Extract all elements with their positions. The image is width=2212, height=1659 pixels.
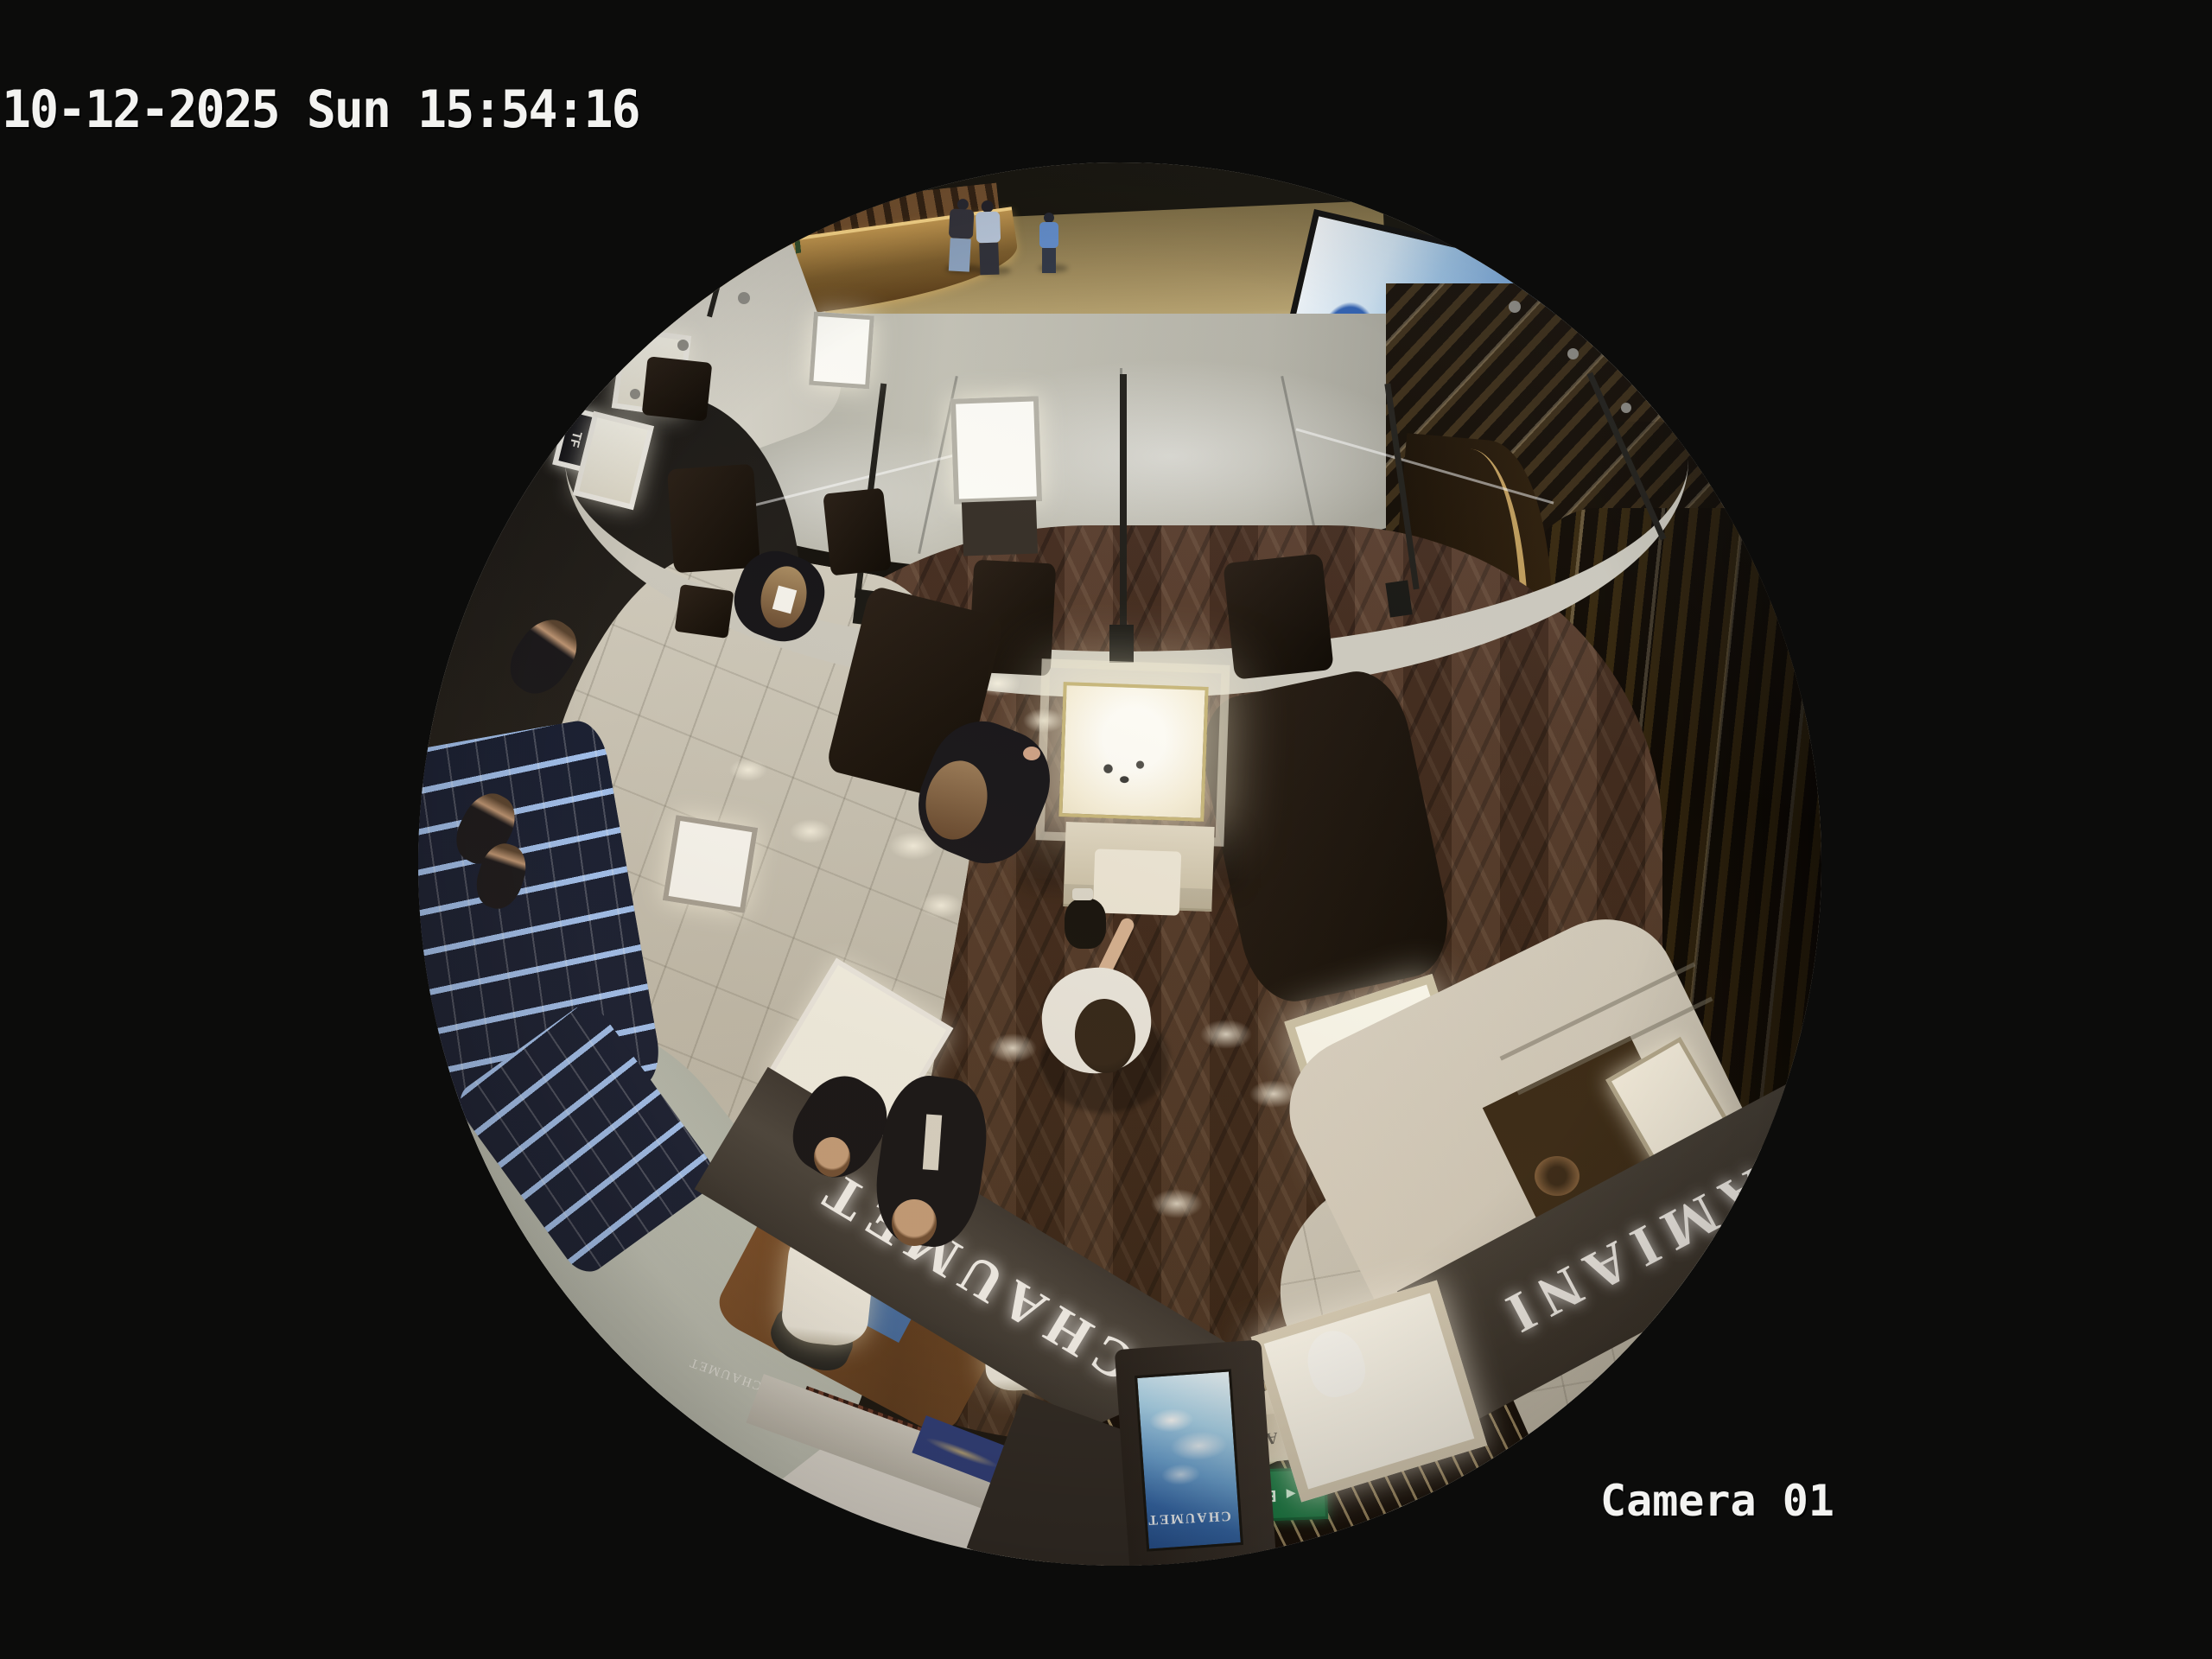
- lens-vignette: [418, 162, 1821, 1566]
- osd-timestamp: 10-12-2025 Sun 15:54:16: [2, 79, 639, 140]
- fisheye-camera-view: TOM FORD TF: [418, 162, 1821, 1566]
- round-mirror: [524, 402, 556, 433]
- osd-camera-label: Camera 01: [1600, 1476, 1834, 1526]
- cctv-frame: 10-12-2025 Sun 15:54:16: [0, 0, 2212, 1659]
